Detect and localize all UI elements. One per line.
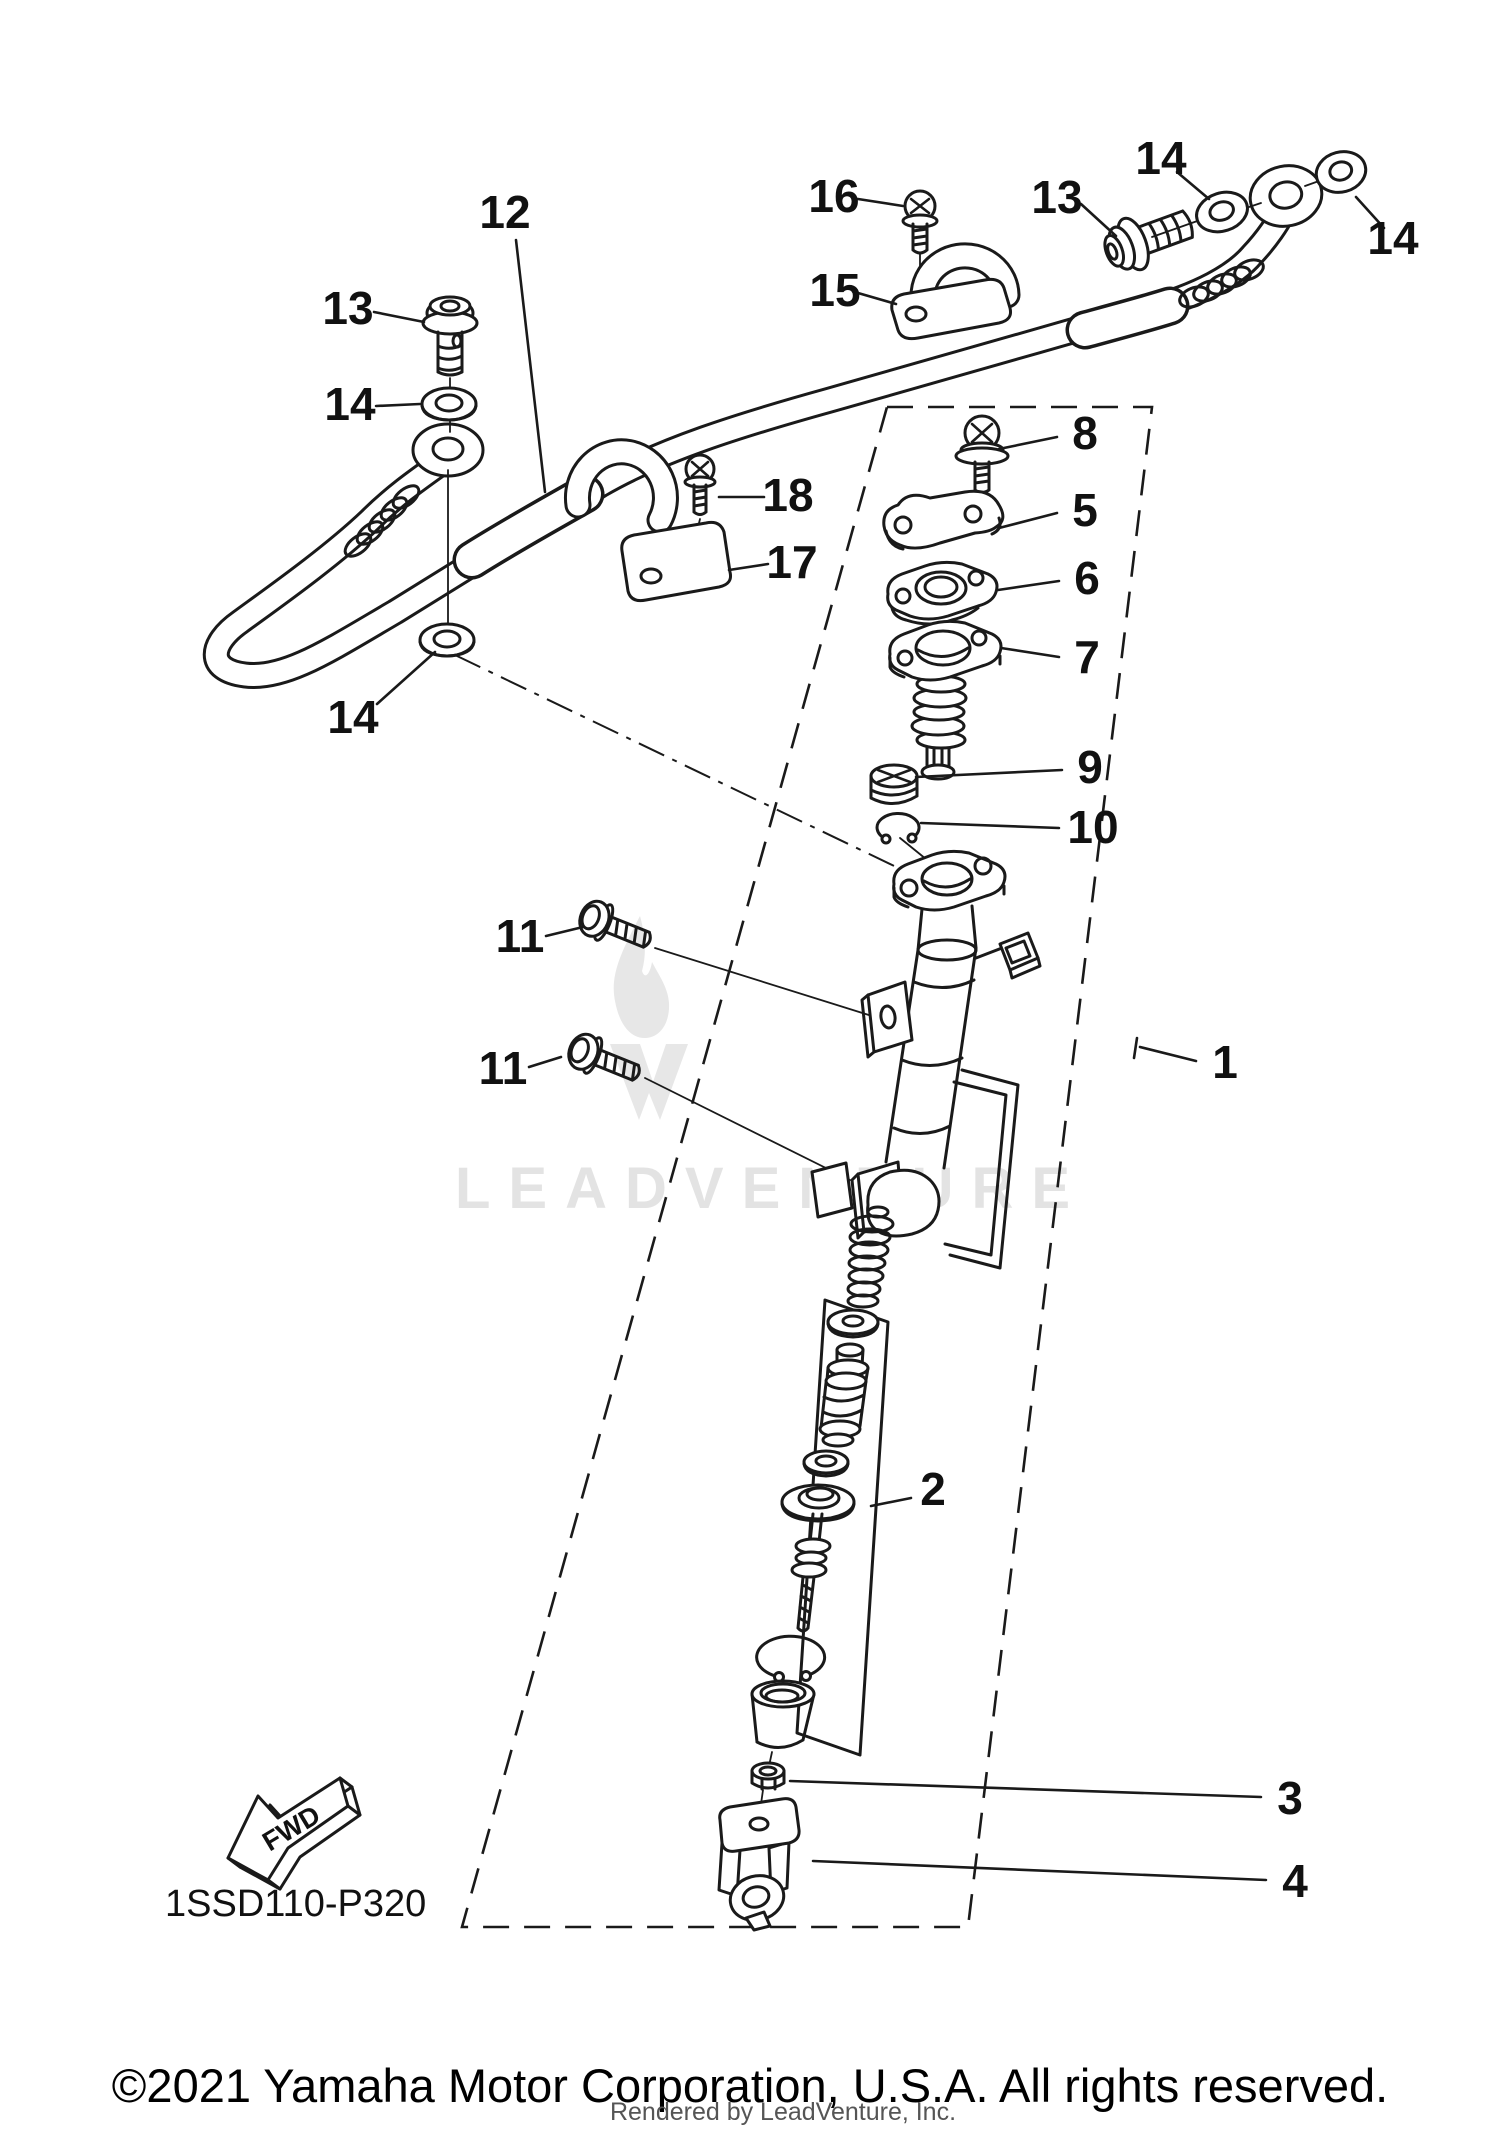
- master-cylinder-body: [812, 851, 1040, 1268]
- footer: ©2021 Yamaha Motor Corporation, U.S.A. A…: [112, 2059, 1388, 2126]
- parts-diagram-page: LEADVENTURE: [0, 0, 1500, 2135]
- callout-14-right: 14: [1367, 212, 1419, 264]
- callout-13-left: 13: [322, 282, 373, 334]
- hose-holder-15: [892, 256, 1011, 339]
- washer-14-top: [1191, 186, 1252, 238]
- rod-circlip: [757, 1636, 825, 1681]
- callout-7: 7: [1074, 631, 1100, 683]
- hose-banjo-eye-right: [1245, 159, 1328, 233]
- watermark-text: LEADVENTURE: [455, 1156, 1088, 1221]
- exploded-parts-diagram: LEADVENTURE: [0, 0, 1500, 2135]
- washer-14-lower-left: [420, 624, 474, 656]
- nut-3: [752, 1763, 784, 1789]
- callout-13-right: 13: [1031, 171, 1082, 223]
- callout-14-lower-left: 14: [327, 691, 379, 743]
- hose-banjo-eye-left: [413, 424, 483, 476]
- screw-16: [903, 191, 937, 253]
- leadventure-watermark: LEADVENTURE: [455, 916, 1088, 1221]
- callout-14-top: 14: [1135, 132, 1187, 184]
- banjo-bolt-13-right: [1097, 198, 1199, 279]
- callout-1: 1: [1212, 1036, 1238, 1088]
- rendered-by-text: Rendered by LeadVenture, Inc.: [610, 2098, 956, 2126]
- piston-washer: [804, 1451, 848, 1476]
- callout-2: 2: [920, 1463, 946, 1515]
- callout-3: 3: [1277, 1772, 1303, 1824]
- clevis-joint-4: [719, 1799, 799, 1930]
- washer-14-left: [422, 388, 476, 420]
- callout-5: 5: [1072, 484, 1098, 536]
- spring-seat-washer: [828, 1310, 878, 1337]
- push-rod: [792, 1514, 830, 1631]
- piston: [820, 1344, 868, 1446]
- callout-14-left: 14: [324, 378, 376, 430]
- boot-cup: [752, 1681, 814, 1748]
- callout-6: 6: [1074, 552, 1100, 604]
- callout-11-upper: 11: [496, 910, 545, 962]
- brake-hose: [216, 159, 1327, 675]
- diagram-code: 1SSD110-P320: [165, 1883, 426, 1925]
- callout-9: 9: [1077, 741, 1103, 793]
- union-flange-7: [890, 621, 1001, 779]
- callout-11-lower: 11: [479, 1042, 528, 1094]
- callout-8: 8: [1072, 407, 1098, 459]
- callout-17: 17: [766, 536, 817, 588]
- gasket-plate-6: [888, 562, 997, 624]
- callout-10: 10: [1067, 801, 1118, 853]
- flame-icon: [614, 916, 669, 1038]
- callout-12: 12: [479, 186, 530, 238]
- callout-16: 16: [808, 170, 859, 222]
- screw-18: [685, 455, 715, 515]
- cup-9: [871, 765, 917, 804]
- fwd-arrow: FWD: [228, 1778, 360, 1889]
- callout-4: 4: [1282, 1855, 1308, 1907]
- callout-18: 18: [762, 469, 813, 521]
- banjo-bolt-13-left: [423, 297, 477, 375]
- reservoir-cover-5: [884, 491, 1003, 549]
- circlip-10: [877, 814, 919, 843]
- spring: [848, 1216, 893, 1307]
- v-logo-icon: [610, 1044, 688, 1120]
- callout-15: 15: [809, 264, 860, 316]
- dome-washer: [782, 1485, 854, 1521]
- screw-8: [956, 416, 1008, 493]
